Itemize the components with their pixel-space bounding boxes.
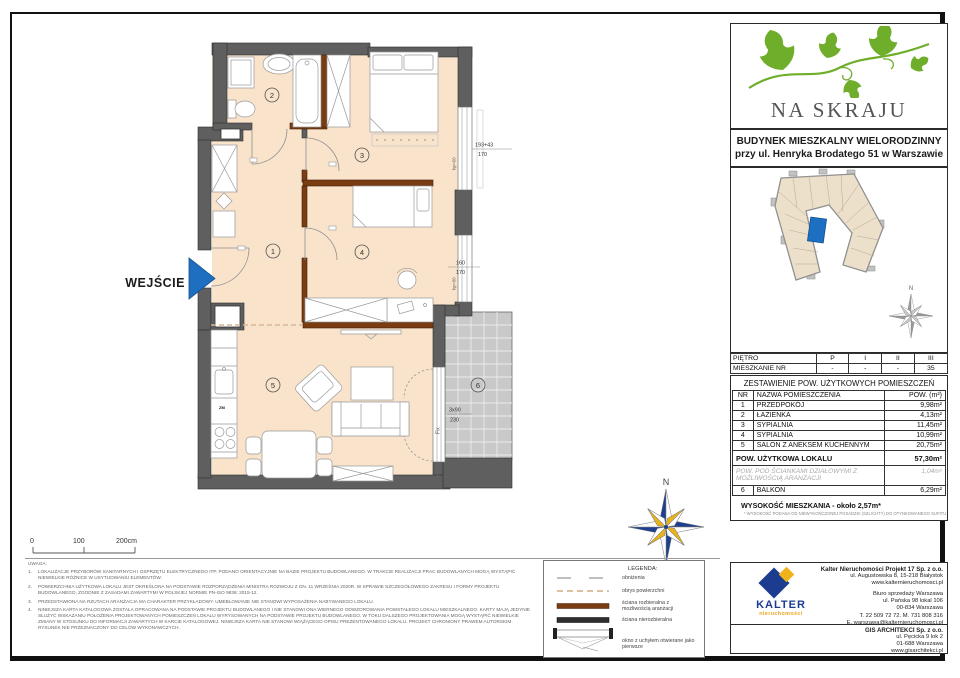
ivy-logo-icon xyxy=(731,26,947,98)
note-item: 4. NINIEJSZA KARTA KATALOGOWA ZOSTAŁA OP… xyxy=(28,607,533,631)
building-type: BUDYNEK MIESZKALNY WIELORODZINNY xyxy=(737,135,942,148)
partition-area-row: POW. POD ŚCIANKAMI DZIAŁOWYMI Z MOŻLIWOŚ… xyxy=(733,466,946,486)
legend-box: LEGENDA: obniżenia obrys powierzchni ści… xyxy=(543,560,705,658)
sales-office-city: 00-834 Warszawa xyxy=(821,605,943,612)
table-row: MIESZKANIE NR - - - 35 xyxy=(731,364,948,374)
notes-title: UWAGA: xyxy=(28,561,533,567)
kalter-logo-text: KALTER xyxy=(745,599,817,611)
dim-balcony-top: 3x90 xyxy=(449,408,461,414)
site-compass-icon: N xyxy=(889,286,933,338)
floor-table-box: PIĘTRO P I II III MIESZKANIE NR - - - 35 xyxy=(730,353,948,375)
legend-label: obniżenia xyxy=(622,575,698,581)
total-area-label: POW. UŻYTKOWA LOKALU xyxy=(733,451,885,466)
kalter-contact-section: KALTER nieruchomości Kalter Nieruchomośc… xyxy=(731,563,947,625)
legend-item: ściana nierozbieralna xyxy=(544,616,702,624)
balcony-hp0-label: hp=0,0 xyxy=(436,462,441,476)
note-3: PRZEDSTAWIONA NA RZUTACH ARANŻACJA MA CH… xyxy=(38,599,374,605)
building-address: przy ul. Henryka Brodatego 51 w Warszawi… xyxy=(735,148,943,161)
scale-100: 100 xyxy=(73,538,85,545)
legend-item: obrys powierzchni xyxy=(544,588,702,594)
note-item: 3. PRZEDSTAWIONA NA RZUTACH ARANŻACJA MA… xyxy=(28,599,533,605)
scale-0: 0 xyxy=(30,538,34,545)
gis-contact-text: GIS ARCHITEKCI Sp. z o.o. ul. Pęcicka 9 … xyxy=(865,627,943,655)
legend-label: ściana nierozbieralna xyxy=(622,617,698,623)
partition-area-value: 1,04m² xyxy=(884,466,945,486)
note-item: 2. POWIERZCHNIA UŻYTKOWA LOKALU JEST OKR… xyxy=(28,584,533,596)
table-row: 3 SYPIALNIA 11,45m² xyxy=(733,421,946,431)
area-outline-symbol xyxy=(544,588,622,594)
partition-area-label: POW. POD ŚCIANKAMI DZIAŁOWYMI Z MOŻLIWOŚ… xyxy=(733,466,885,486)
total-area-value: 57,30m² xyxy=(884,451,945,466)
room-number-5: 5 xyxy=(271,381,275,390)
site-plan-box: N xyxy=(730,167,948,353)
note-item: 1. LOKALIZACJE PRZYBORÓW SANITARNYCH I O… xyxy=(28,569,533,581)
balcony-row: 6 BALKON 6,29m² xyxy=(733,486,946,496)
table-header-row: NR NAZWA POMIESZCZENIA POW. (m²) xyxy=(733,391,946,401)
contacts-box: KALTER nieruchomości Kalter Nieruchomośc… xyxy=(730,562,948,654)
logo-box: NA SKRAJU xyxy=(730,23,948,129)
notes-block: UWAGA: 1. LOKALIZACJE PRZYBORÓW SANITARN… xyxy=(28,561,533,634)
kalter-logo-subtext: nieruchomości xyxy=(745,611,817,617)
room-number-2: 2 xyxy=(270,91,274,100)
apartment-height-note: * WYSOKOŚĆ PODANA OD NIEWYKOŃCZONEJ POSA… xyxy=(731,511,947,520)
legend-label: obrys powierzchni xyxy=(622,588,698,594)
site-plan-drawing: N xyxy=(731,168,947,352)
dim-window1-top: 193+43 xyxy=(475,143,493,149)
total-area-row: POW. UŻYTKOWA LOKALU 57,30m² xyxy=(733,451,946,466)
catalog-sheet: hp=60 hp=80 Fix hp=0,0 xyxy=(0,0,960,678)
building-address-box: BUDYNEK MIESZKALNY WIELORODZINNY przy ul… xyxy=(730,129,948,167)
room-number-4: 4 xyxy=(360,248,364,257)
gis-company-name: GIS ARCHITEKCI Sp. z o.o. xyxy=(865,627,943,634)
table-row: 2 ŁAZIENKA 4,13m² xyxy=(733,411,946,421)
table-row: 5 SALON Z ANEKSEM KUCHENNYM 20,75m² xyxy=(733,441,946,451)
dim-window2-bot: 170 xyxy=(456,270,465,276)
highlighted-unit xyxy=(807,217,826,243)
sales-office-phone: T. 22 509 72 72. M. 731 808 316 xyxy=(821,613,943,620)
table-row: PIĘTRO P I II III xyxy=(731,354,948,364)
legend-item: ściana rozbieralna z możliwością aranżac… xyxy=(544,600,702,613)
balcony-fix-label: Fix xyxy=(436,427,442,434)
kitchen-fixtures: ZM xyxy=(211,330,237,458)
window2-hp-label: hp=80 xyxy=(452,277,457,290)
building-outline xyxy=(775,174,883,280)
scale-200: 200cm xyxy=(116,538,137,545)
table-row: 1 PRZEDPOKÓJ 9,98m² xyxy=(733,401,946,411)
gis-contact-section: GIS ARCHITEKCI Sp. z o.o. ul. Pęcicka 9 … xyxy=(731,625,947,654)
dim-window1-bot: 170 xyxy=(478,152,487,158)
room-number-1: 1 xyxy=(271,247,275,256)
sales-office-title: Biuro sprzedaży Warszawa xyxy=(821,591,943,598)
compass-n-label: N xyxy=(663,477,670,487)
legend-item: okno z uchyłem otwierane jako pierwsze xyxy=(544,627,702,653)
room-number-3: 3 xyxy=(360,151,364,160)
gis-street: ul. Pęcicka 9 lok 2 xyxy=(865,634,943,641)
lowering-symbol xyxy=(544,575,622,581)
legend-label: ściana rozbieralna z możliwością aranżac… xyxy=(622,600,698,613)
area-table-box: ZESTAWIENIE POW. UŻYTKOWYCH POMIESZCZEŃ … xyxy=(730,375,948,521)
note-1: LOKALIZACJE PRZYBORÓW SANITARNYCH I OSPR… xyxy=(38,569,533,581)
dim-balcony-bot: 230 xyxy=(450,418,459,424)
kalter-contact-text: Kalter Nieruchomości Projekt 17 Sp. z o.… xyxy=(821,566,943,627)
apartment-height: WYSOKOŚĆ MIESZKANIA - około 2,57m* xyxy=(731,496,947,511)
hallway-furniture xyxy=(212,145,237,237)
kalter-company-name: Kalter Nieruchomości Projekt 17 Sp. z o.… xyxy=(821,566,943,573)
kalter-address: ul. Augustowska 8, 15-218 Białystok xyxy=(821,573,943,580)
area-table-title: ZESTAWIENIE POW. UŻYTKOWYCH POMIESZCZEŃ xyxy=(731,376,947,390)
bottom-strip-divider xyxy=(25,558,720,559)
table-row: 4 SYPIALNIA 10,99m² xyxy=(733,431,946,441)
svg-text:N: N xyxy=(909,286,913,292)
gis-city: 01-688 Warszawa xyxy=(865,641,943,648)
scale-bar: 0 100 200cm xyxy=(30,538,137,553)
entrance-label: WEJŚCIE xyxy=(125,275,185,290)
apartment-number-label: MIESZKANIE NR xyxy=(731,364,817,374)
removable-wall-symbol xyxy=(544,602,622,610)
dim-window2-top: 160 xyxy=(456,261,465,267)
compass-rose: N xyxy=(628,477,704,565)
floor-label: PIĘTRO xyxy=(731,354,817,364)
gis-website: www.gisarchitekci.pl xyxy=(865,648,943,655)
dishwasher-label: ZM xyxy=(219,405,225,410)
project-name: NA SKRAJU xyxy=(731,98,947,123)
legend-label: okno z uchyłem otwierane jako pierwsze xyxy=(622,638,698,651)
kalter-logo: KALTER nieruchomości xyxy=(745,568,817,620)
note-2: POWIERZCHNIA UŻYTKOWA LOKALU JEST OKREŚL… xyxy=(38,584,533,596)
legend-item: obniżenia xyxy=(544,575,702,581)
sales-office-street: ul. Pańska 98 lokal 106 xyxy=(821,598,943,605)
legend-title: LEGENDA: xyxy=(628,566,657,572)
fixed-wall-symbol xyxy=(544,616,622,624)
window-tilt-symbol xyxy=(544,627,622,653)
window1-hp-label: hp=60 xyxy=(452,157,457,170)
note-4: NINIEJSZA KARTA KATALOGOWA ZOSTAŁA OPRAC… xyxy=(38,607,533,631)
kalter-website: www.kalternieruchomosci.pl xyxy=(821,580,943,587)
room-number-6: 6 xyxy=(476,381,480,390)
